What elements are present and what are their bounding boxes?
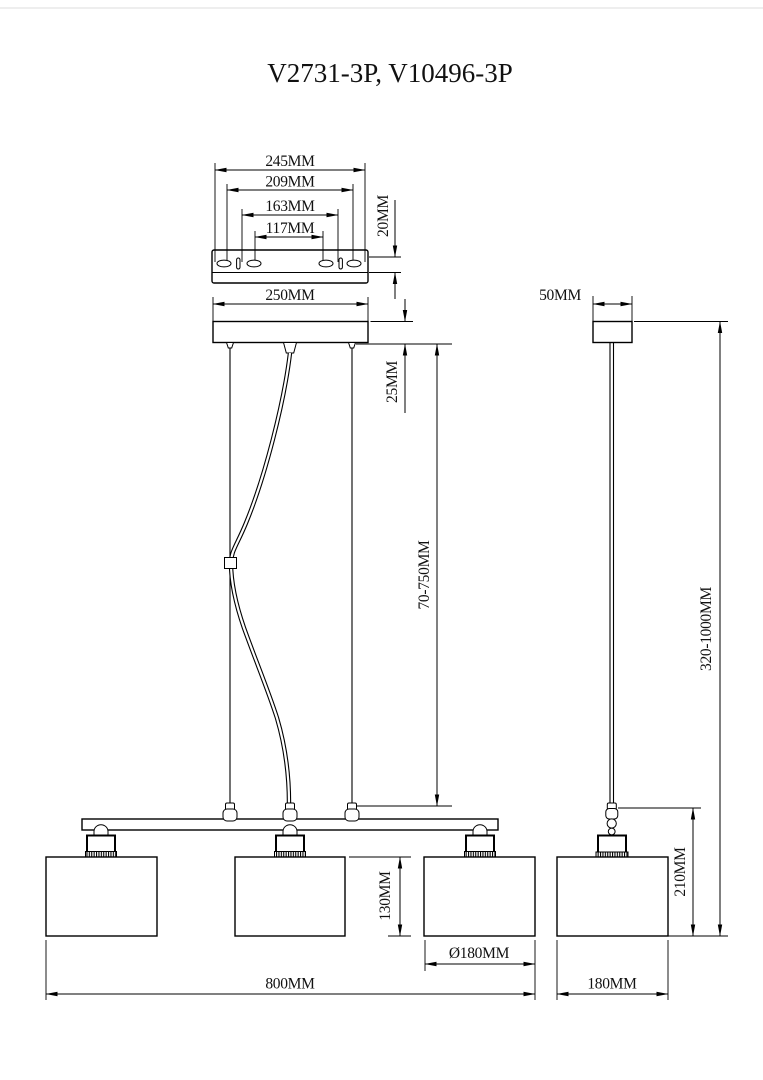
- dim-label-210mm: 210MM: [672, 847, 689, 897]
- side-lamp-socket: [596, 836, 628, 858]
- suspension-cables: 70-750MM: [225, 344, 453, 806]
- bracket-plate: [212, 250, 368, 283]
- dim-label-180mm: 180MM: [587, 976, 637, 993]
- cable-nub: [349, 343, 356, 349]
- dim-label-70-750mm: 70-750MM: [416, 540, 433, 610]
- canopy: 250MM 25MM: [213, 287, 452, 413]
- dim-label-20mm: 20MM: [375, 195, 392, 237]
- bracket-slot-hole: [319, 260, 333, 267]
- cord-connector: [283, 803, 297, 821]
- cable-nub: [227, 343, 234, 349]
- dim-label-800mm: 800MM: [265, 976, 315, 993]
- front-view: 245MM 209MM 163MM 117MM 20MM 250MM: [46, 153, 535, 1000]
- bracket-slot-hole: [237, 258, 240, 269]
- bracket-slot-hole: [339, 258, 342, 269]
- technical-drawing-page: V2731-3P, V10496-3P: [0, 0, 763, 1080]
- drawing-title: V2731-3P, V10496-3P: [267, 58, 513, 88]
- dim-label-117mm: 117MM: [266, 220, 315, 237]
- canopy-plate: [213, 322, 368, 343]
- side-overall-dimension: 320-1000MM: [634, 322, 728, 937]
- lamp-shade: [46, 857, 157, 936]
- bracket-slot-hole: [347, 260, 361, 267]
- cord-clamp: [225, 558, 237, 569]
- drawing-canvas: V2731-3P, V10496-3P: [0, 0, 763, 1080]
- side-shade-dimension: 180MM: [557, 940, 668, 1000]
- side-connector: [606, 803, 618, 835]
- dim-label-dia-180mm: Ø180MM: [449, 945, 510, 962]
- bracket-slot-hole: [217, 260, 231, 267]
- dim-label-209mm: 209MM: [265, 174, 315, 191]
- bracket-slot-hole: [247, 260, 261, 267]
- dim-label-163mm: 163MM: [265, 198, 315, 215]
- side-view: 50MM 210MM 320-1000M: [539, 287, 728, 1000]
- fixture-bar-assembly: [46, 803, 535, 936]
- dim-label-250mm: 250MM: [265, 287, 315, 304]
- dim-label-320-1000mm: 320-1000MM: [698, 586, 715, 670]
- dim-label-245mm: 245MM: [265, 153, 315, 170]
- cable-connector: [345, 803, 359, 821]
- cable-connector: [223, 803, 237, 821]
- dim-label-130mm: 130MM: [377, 871, 394, 921]
- lamp-shade: [424, 857, 535, 936]
- lamp-shade: [235, 857, 345, 936]
- side-canopy: [593, 322, 632, 343]
- dim-label-50mm: 50MM: [539, 287, 581, 304]
- side-canopy-dimension: 50MM: [539, 287, 632, 321]
- cord-gland: [284, 343, 297, 354]
- side-lamp-shade: [557, 857, 668, 936]
- dim-label-25mm: 25MM: [384, 361, 401, 403]
- side-cable: [610, 343, 614, 804]
